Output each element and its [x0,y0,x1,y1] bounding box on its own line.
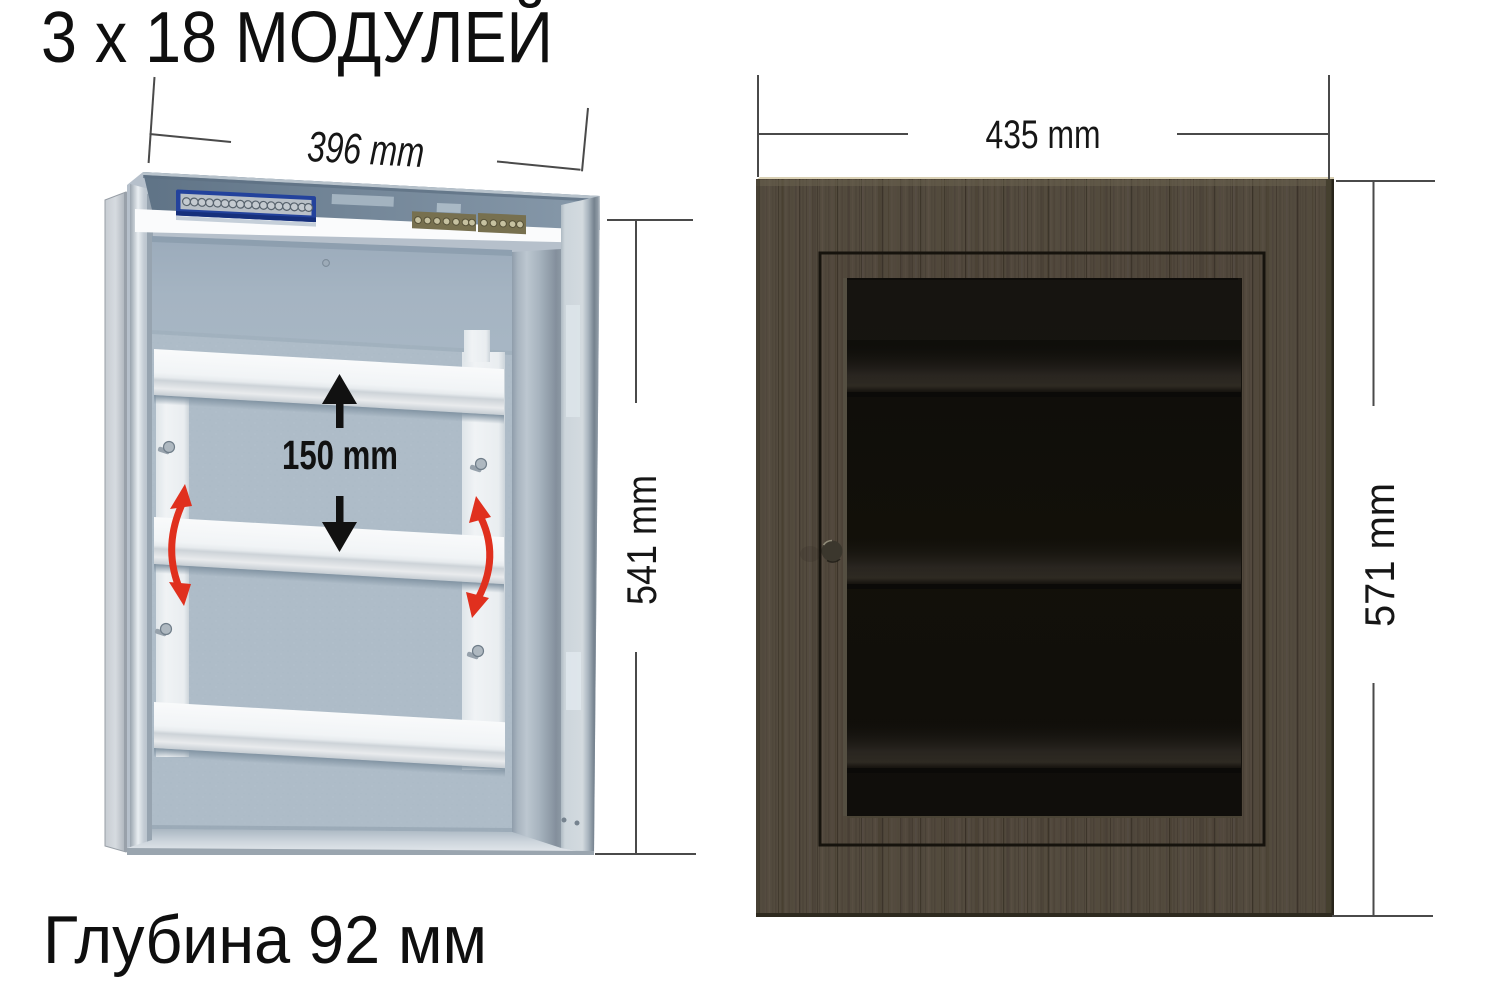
svg-text:Глубина 92 мм: Глубина 92 мм [43,902,487,978]
svg-text:150 mm: 150 mm [282,432,398,478]
svg-text:541 mm: 541 mm [618,475,665,605]
svg-text:435 mm: 435 mm [986,113,1101,157]
svg-text:3 x 18 МОДУЛЕЙ: 3 x 18 МОДУЛЕЙ [41,0,553,78]
svg-text:571 mm: 571 mm [1356,483,1403,627]
svg-text:396 mm: 396 mm [306,123,425,177]
